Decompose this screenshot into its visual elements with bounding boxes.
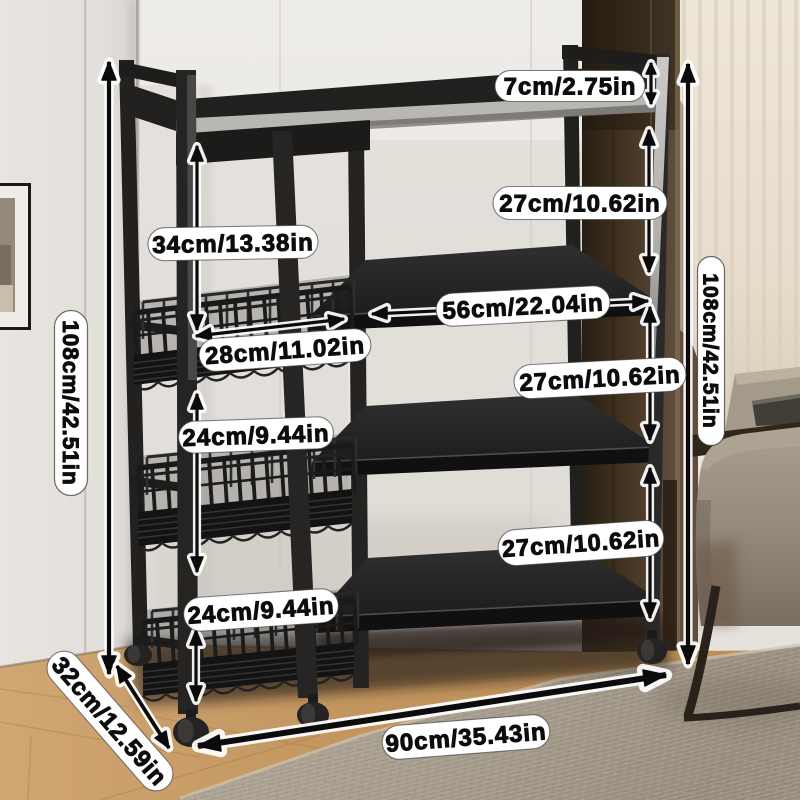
svg-text:108cm/42.51in: 108cm/42.51in [58,320,83,486]
svg-text:27cm/10.62in: 27cm/10.62in [499,191,660,218]
svg-text:34cm/13.38in: 34cm/13.38in [152,229,314,259]
svg-text:108cm/42.51in: 108cm/42.51in [698,273,721,428]
svg-text:24cm/9.44in: 24cm/9.44in [182,420,330,452]
svg-text:7cm/2.75in: 7cm/2.75in [504,74,637,101]
